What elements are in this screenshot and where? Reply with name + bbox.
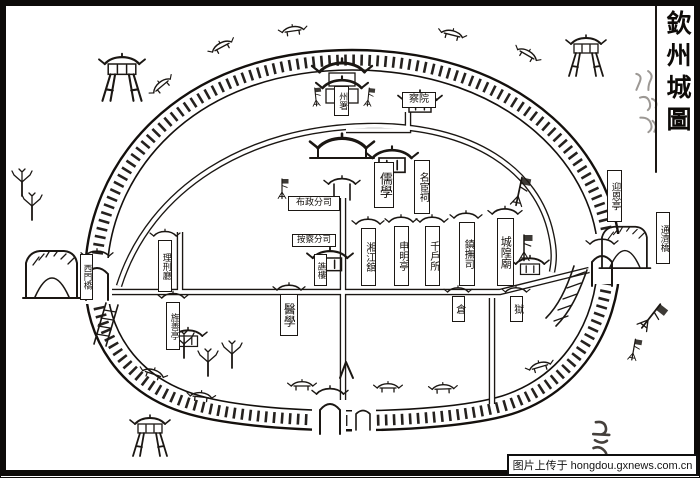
map-drawing xyxy=(0,0,700,478)
label-jingshanting: 旌善亭 xyxy=(166,302,180,350)
label-ximenqiao: 西門橋 xyxy=(80,254,93,300)
label-xiangjiangguan: 湘江舘 xyxy=(361,228,376,286)
label-chayuan: 察院 xyxy=(402,92,436,108)
label-yingenting: 迎恩亭 xyxy=(607,170,622,222)
label-shenmingting: 申明亭 xyxy=(394,226,409,286)
west-bridge-icon xyxy=(23,251,81,298)
collector-seal xyxy=(635,71,658,133)
label-buzhengfensi: 布政分司 xyxy=(288,196,340,211)
watermark-text: 图片上传于 hongdou.gxnews.com.cn xyxy=(513,457,693,473)
label-chenghuangmiao: 城隍廟 xyxy=(497,218,514,286)
map-title: 欽州城圖 xyxy=(659,10,695,180)
qinzhou-city-map: 欽州城圖 州署 察院 儒學 名宦祠 布政分司 按察分司 譙樓 湘江舘 申明亭 千… xyxy=(0,0,700,478)
label-zhoushu: 州署 xyxy=(334,86,349,116)
label-minghuanci: 名宦祠 xyxy=(414,160,430,214)
watermark: 图片上传于 hongdou.gxnews.com.cn xyxy=(507,454,698,476)
label-zhenfusi: 鎮撫司 xyxy=(459,222,475,286)
label-anchafensi: 按察分司 xyxy=(292,234,336,247)
label-yu: 獄 xyxy=(510,296,523,322)
streets xyxy=(112,112,589,404)
label-lixingting: 理刑廳 xyxy=(158,240,172,292)
label-ruxue: 儒學 xyxy=(374,162,394,208)
label-tongjiqiao: 通濟橋 xyxy=(656,212,670,264)
label-cang: 倉 xyxy=(452,296,465,322)
label-qianhusuo: 千戶所 xyxy=(425,226,440,286)
label-qiaolou: 譙樓 xyxy=(314,254,327,286)
label-yixue: 醫學 xyxy=(280,294,298,336)
